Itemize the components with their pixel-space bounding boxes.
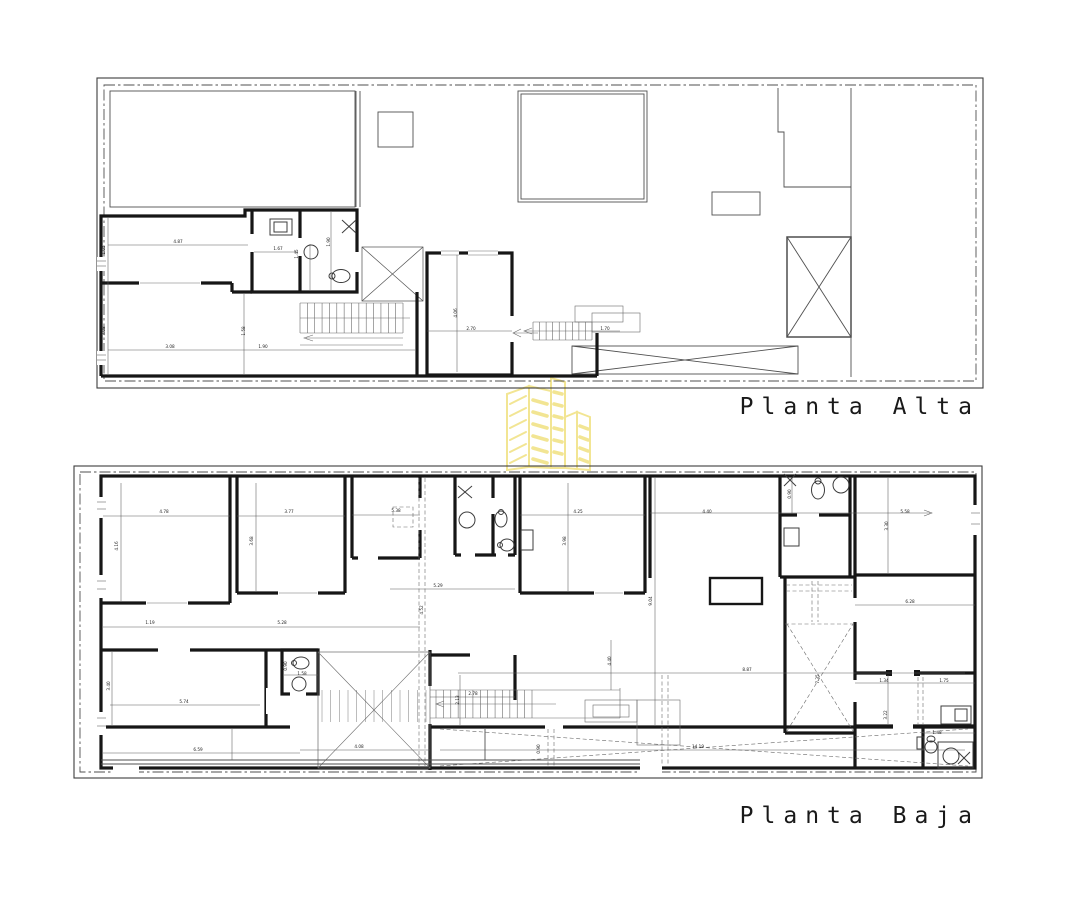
svg-text:1.58: 1.58 bbox=[241, 326, 246, 336]
floor-plan-sheet: 4.871.053.083.081.581.901.671.451.902.70… bbox=[0, 0, 1092, 900]
svg-text:2.78: 2.78 bbox=[468, 691, 478, 696]
svg-text:1.58: 1.58 bbox=[297, 671, 307, 676]
round-sink-icon bbox=[304, 245, 318, 259]
stairs-main-flight bbox=[430, 688, 680, 745]
svg-text:1.75: 1.75 bbox=[939, 678, 949, 683]
svg-text:3.68: 3.68 bbox=[249, 536, 254, 546]
toilet-icon bbox=[495, 511, 507, 527]
svg-text:6.28: 6.28 bbox=[905, 599, 915, 604]
svg-text:3.40: 3.40 bbox=[106, 681, 111, 691]
svg-text:7.35: 7.35 bbox=[815, 674, 820, 684]
svg-text:1.48: 1.48 bbox=[932, 730, 942, 735]
svg-text:3.22: 3.22 bbox=[883, 710, 888, 720]
svg-text:4.40: 4.40 bbox=[607, 656, 612, 666]
planta-alta-drawing: 4.871.053.083.081.581.901.671.451.902.70… bbox=[97, 78, 983, 388]
svg-text:1.90: 1.90 bbox=[326, 237, 331, 247]
stairs-arrival-flight bbox=[524, 306, 640, 340]
dimension-labels-baja: 4.784.163.773.685.381.195.285.294.524.25… bbox=[106, 489, 949, 754]
plan-drawing: 4.871.053.083.081.581.901.671.451.902.70… bbox=[0, 0, 1092, 900]
svg-text:1.34: 1.34 bbox=[879, 678, 889, 683]
svg-text:0.90: 0.90 bbox=[787, 489, 792, 499]
svg-text:5.28: 5.28 bbox=[277, 620, 287, 625]
svg-text:5.58: 5.58 bbox=[900, 509, 910, 514]
svg-text:4.08: 4.08 bbox=[354, 744, 364, 749]
stair-void-zone bbox=[318, 652, 430, 768]
svg-text:4.06: 4.06 bbox=[453, 308, 458, 318]
svg-text:4.52: 4.52 bbox=[419, 605, 424, 615]
svg-text:1.67: 1.67 bbox=[273, 246, 283, 251]
svg-text:0.90: 0.90 bbox=[283, 661, 288, 671]
shower-drain-icon bbox=[943, 748, 959, 764]
round-sink-icon bbox=[459, 512, 475, 528]
toilet-icon bbox=[925, 741, 937, 753]
round-sink-icon bbox=[833, 477, 849, 493]
svg-text:1.05: 1.05 bbox=[101, 245, 106, 255]
planta-baja-drawing: 4.784.163.773.685.381.195.285.294.524.25… bbox=[74, 466, 982, 778]
svg-text:8.87: 8.87 bbox=[742, 667, 752, 672]
svg-text:2.70: 2.70 bbox=[466, 326, 476, 331]
bathroom-fixtures-baja bbox=[292, 474, 974, 768]
svg-text:1.45: 1.45 bbox=[294, 249, 299, 259]
planta-baja-title: Planta Baja bbox=[740, 803, 980, 829]
svg-text:4.87: 4.87 bbox=[173, 239, 183, 244]
sink-counter-icon bbox=[270, 219, 292, 235]
svg-text:5.74: 5.74 bbox=[179, 699, 189, 704]
svg-text:1.19: 1.19 bbox=[145, 620, 155, 625]
round-sink-icon bbox=[292, 677, 306, 691]
svg-text:6.59: 6.59 bbox=[193, 747, 203, 752]
stairs-upper-flight bbox=[300, 303, 410, 345]
toilet-icon bbox=[293, 657, 309, 669]
svg-text:4.78: 4.78 bbox=[159, 509, 169, 514]
buildings-watermark-icon bbox=[507, 378, 590, 470]
planta-alta-title: Planta Alta bbox=[740, 394, 980, 420]
svg-text:1.90: 1.90 bbox=[258, 344, 268, 349]
svg-text:3.98: 3.98 bbox=[562, 536, 567, 546]
svg-text:3.08: 3.08 bbox=[165, 344, 175, 349]
svg-text:4.16: 4.16 bbox=[114, 541, 119, 551]
svg-text:4.40: 4.40 bbox=[702, 509, 712, 514]
svg-text:0.90: 0.90 bbox=[536, 744, 541, 754]
svg-text:1.70: 1.70 bbox=[600, 326, 610, 331]
svg-text:9.04: 9.04 bbox=[648, 596, 653, 606]
svg-text:4.25: 4.25 bbox=[573, 509, 583, 514]
svg-text:3.77: 3.77 bbox=[284, 509, 294, 514]
svg-text:3.08: 3.08 bbox=[101, 326, 106, 336]
svg-text:5.29: 5.29 bbox=[433, 583, 443, 588]
svg-text:3.30: 3.30 bbox=[884, 521, 889, 531]
svg-text:14.19: 14.19 bbox=[692, 744, 704, 749]
bathroom-fixtures-alta bbox=[270, 219, 356, 283]
svg-text:2.13: 2.13 bbox=[455, 695, 460, 705]
svg-text:5.38: 5.38 bbox=[391, 508, 401, 513]
